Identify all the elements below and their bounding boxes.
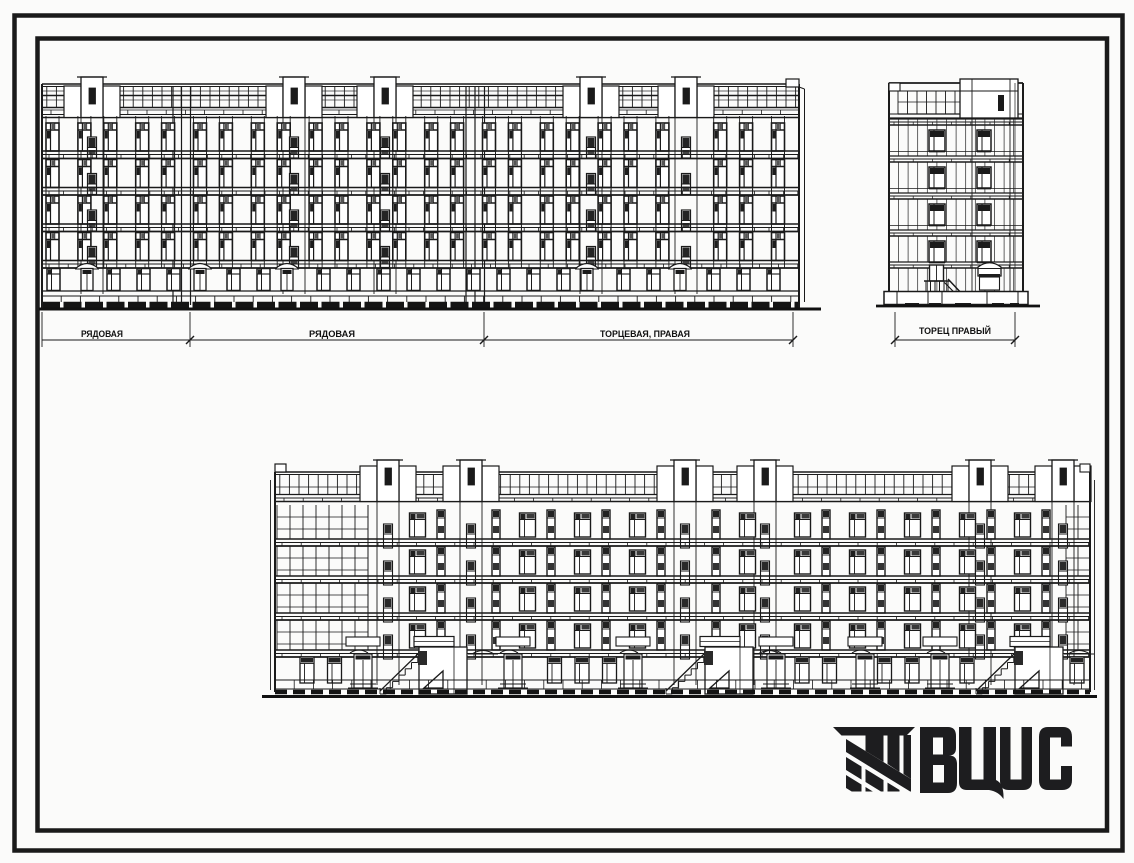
- svg-text:РЯДОВАЯ: РЯДОВАЯ: [309, 329, 355, 339]
- svg-text:ТОРЕЦ ПРАВЫЙ: ТОРЕЦ ПРАВЫЙ: [919, 325, 991, 336]
- svg-text:ТОРЦЕВАЯ, ПРАВАЯ: ТОРЦЕВАЯ, ПРАВАЯ: [600, 329, 690, 339]
- svg-text:РЯДОВАЯ: РЯДОВАЯ: [81, 329, 123, 339]
